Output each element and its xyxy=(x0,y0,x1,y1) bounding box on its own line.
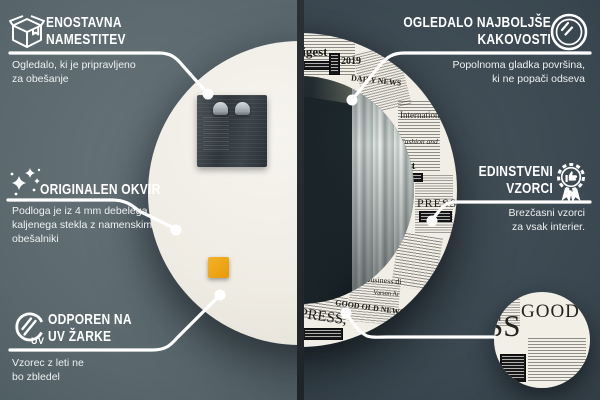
round-mirror-icon xyxy=(549,12,589,52)
mirror-glass xyxy=(302,76,414,304)
package-box-icon xyxy=(9,14,45,50)
hanging-plate xyxy=(197,95,267,167)
newsprint-headline-box xyxy=(500,354,526,382)
callout-title: ORIGINALEN OKVIR xyxy=(40,182,168,199)
newsprint-snippet: digest xyxy=(302,45,328,58)
newsprint-snippet: GOOD xyxy=(521,302,580,321)
center-divider xyxy=(297,0,304,400)
newsprint-headline-box xyxy=(329,53,340,75)
newsprint-snippet: SS xyxy=(494,310,520,341)
callout-title: OGLEDALO NAJBOLJŠE KAKOVOSTI xyxy=(391,15,551,48)
newsprint-snippet: 2019 xyxy=(341,57,361,67)
pattern-zoom-bubble: SS GOOD xyxy=(494,292,590,388)
callout-title: ENOSTAVNA NAMESTITEV xyxy=(46,15,174,48)
callout-description: Vzorec z leti ne bo zbledel xyxy=(12,357,172,385)
callout-title: EDINSTVENI VZORCI xyxy=(433,164,553,197)
newsprint-headline-box xyxy=(303,61,331,70)
callout-description: Popolnoma gladka površina, ki ne popači … xyxy=(395,59,585,87)
product-showcase: digest 2019 DAILY NEWS International Fas… xyxy=(0,0,600,400)
callout-description: Podloga je iz 4 mm debelega kaljenega st… xyxy=(12,205,202,247)
newsprint-headline-box xyxy=(303,328,343,340)
hanging-bracket xyxy=(210,102,254,116)
plate-etched-text xyxy=(203,117,229,151)
newsprint-column xyxy=(528,338,586,382)
callout-description: Ogledalo, ki je pripravljeno za obešanje xyxy=(12,59,192,87)
uv-icon-label: UV xyxy=(31,336,45,346)
award-badge-icon xyxy=(553,161,589,205)
sparkles-icon xyxy=(6,164,42,200)
adhesive-pad xyxy=(208,257,229,278)
callout-title: ODPOREN NA UV ŽARKE xyxy=(48,312,160,345)
callout-description: Brezčasni vzorci za vsak interier. xyxy=(425,207,585,235)
